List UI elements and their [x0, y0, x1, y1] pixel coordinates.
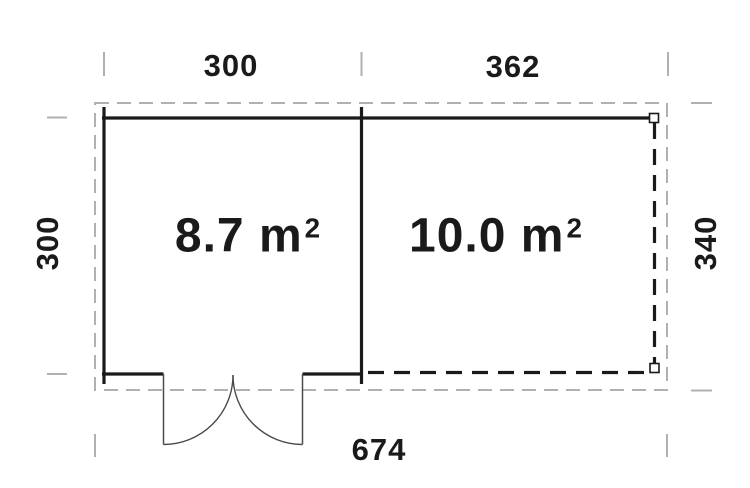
dim-label-right-height: 340 [688, 216, 724, 271]
room-right-area-label: 10.0 m2 [409, 209, 583, 264]
dim-label-top-left-width: 300 [204, 48, 259, 84]
room-right-area-exponent: 2 [566, 213, 582, 244]
dim-label-bottom-total-width: 674 [352, 432, 407, 468]
room-right-area-value: 10.0 m [409, 210, 564, 263]
dim-label-left-height: 300 [30, 216, 66, 271]
room-left-area-value: 8.7 m [175, 210, 303, 263]
room-left-area-exponent: 2 [305, 213, 321, 244]
corner-post-bottom-right [650, 364, 659, 373]
corner-post-top-right [650, 114, 659, 123]
floor-plan-canvas: 300 362 300 340 674 8.7 m2 10.0 m2 [0, 0, 750, 488]
floor-plan-drawing [0, 0, 750, 488]
door-swing-arc-right [233, 375, 303, 445]
door-swing-arc-left [164, 375, 234, 445]
dim-label-top-right-width: 362 [486, 49, 541, 85]
room-left-area-label: 8.7 m2 [175, 209, 321, 264]
